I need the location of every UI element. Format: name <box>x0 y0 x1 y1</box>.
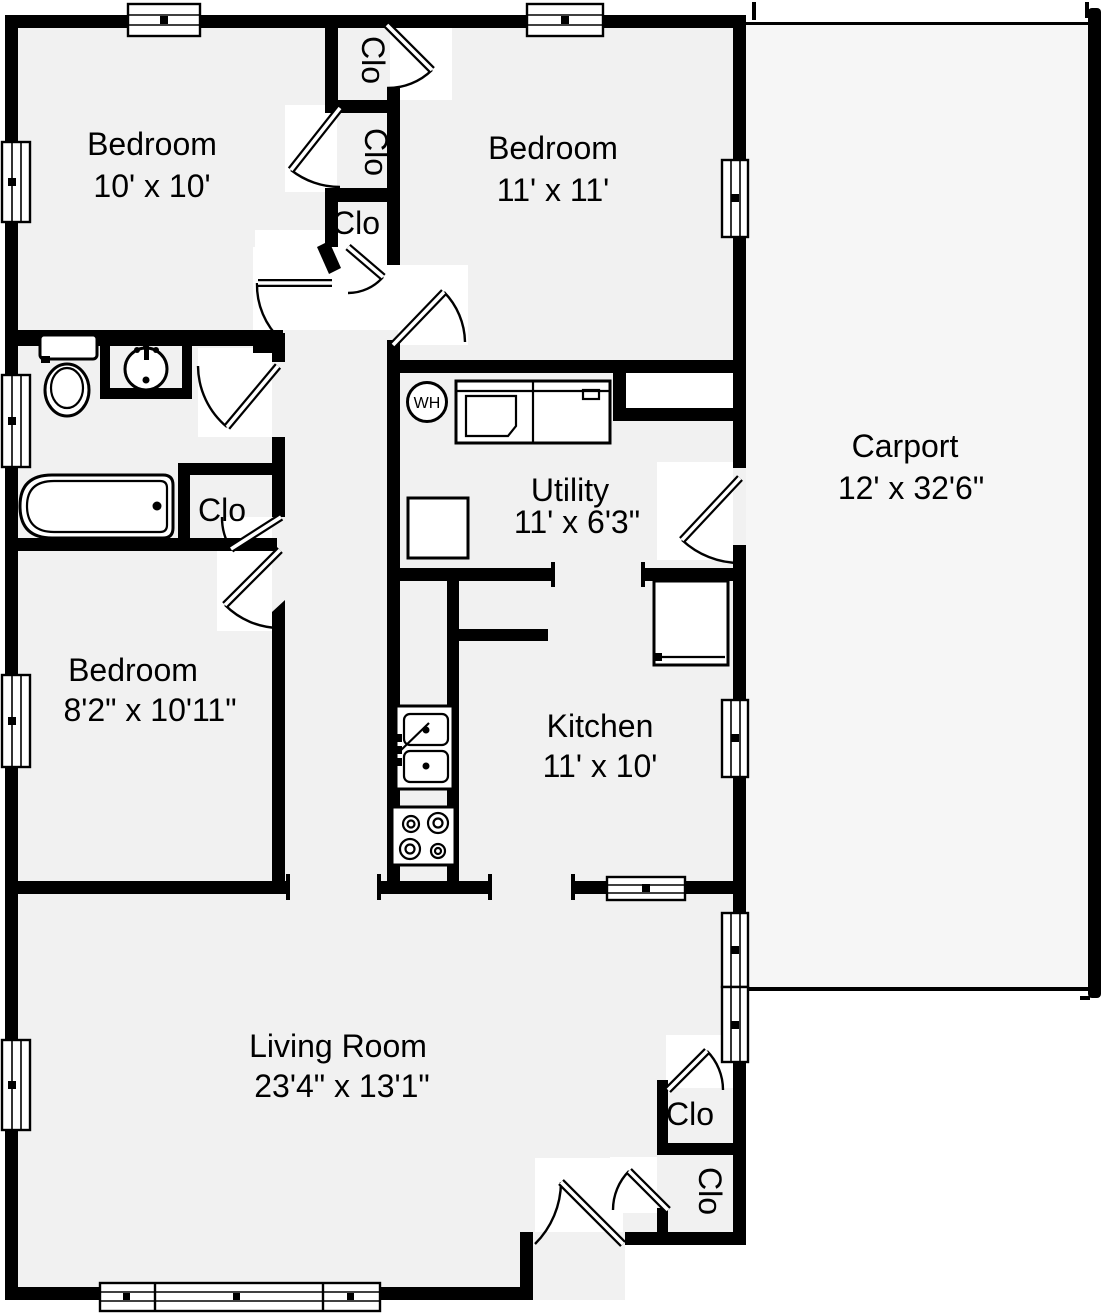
room-dims: 8'2" x 10'11" <box>63 692 236 728</box>
water-heater: WH <box>408 383 447 422</box>
wall-entry-step <box>520 1232 533 1300</box>
room-dims: 11' x 10' <box>543 748 658 784</box>
refrigerator <box>654 581 728 665</box>
window-bed2-right <box>722 160 748 237</box>
room-dims: 11' x 11' <box>497 172 609 208</box>
room-dims: 12' x 32'6" <box>838 470 984 506</box>
window-living-bottom-triple <box>100 1283 380 1311</box>
room-name: Bedroom <box>488 130 618 166</box>
water-heater-label: WH <box>414 395 441 412</box>
wall-bathcloset-top <box>178 463 277 475</box>
closet-label-hall-2: Clo <box>358 128 394 176</box>
window-bed1-left <box>2 142 30 222</box>
carport-edge-top <box>746 22 1094 25</box>
room-dims: 23'4" x 13'1" <box>254 1068 430 1104</box>
floor-plan-page: WH <box>0 0 1107 1314</box>
stove <box>392 807 455 865</box>
window-bed3-left <box>2 675 30 767</box>
utility-appliance <box>408 498 468 558</box>
window-living-right-upper <box>722 913 748 987</box>
carport-wall-right <box>1088 8 1101 998</box>
closet-label-entry-upper: Clo <box>666 1096 714 1132</box>
closet-label-hall-1: Clo <box>355 36 391 84</box>
carport-floor <box>746 22 1094 990</box>
room-name: Bedroom <box>68 652 198 688</box>
window-bath-left <box>2 375 30 467</box>
room-dims: 11' x 6'3" <box>514 504 640 540</box>
window-living-right-lower <box>722 987 748 1062</box>
closet-label-hall-3: Clo <box>332 205 380 241</box>
closet-label-entry-lower: Clo <box>692 1167 728 1215</box>
wall-closet-bottom <box>625 1232 746 1245</box>
carport-edge-bottom <box>746 987 1094 991</box>
window-living-left <box>2 1040 30 1130</box>
room-dims: 10' x 10' <box>93 168 210 204</box>
room-name: Utility <box>531 472 609 508</box>
bathtub <box>20 475 173 538</box>
window-kitchen-right <box>722 700 748 777</box>
wall-utility-top <box>387 360 746 373</box>
wall-top <box>5 15 746 28</box>
kitchen-sink <box>393 706 453 789</box>
window-kitchen-bottom <box>607 877 685 900</box>
floor-plan-drawing: WH <box>0 0 1107 1314</box>
room-name: Living Room <box>249 1028 427 1064</box>
closet-label-bath: Clo <box>198 492 246 528</box>
washer-dryer <box>456 381 610 443</box>
window-bed2-top <box>527 4 603 36</box>
room-name: Bedroom <box>87 126 217 162</box>
window-bed1-top <box>128 4 200 36</box>
room-name: Kitchen <box>547 708 654 744</box>
room-name: Carport <box>852 428 959 464</box>
